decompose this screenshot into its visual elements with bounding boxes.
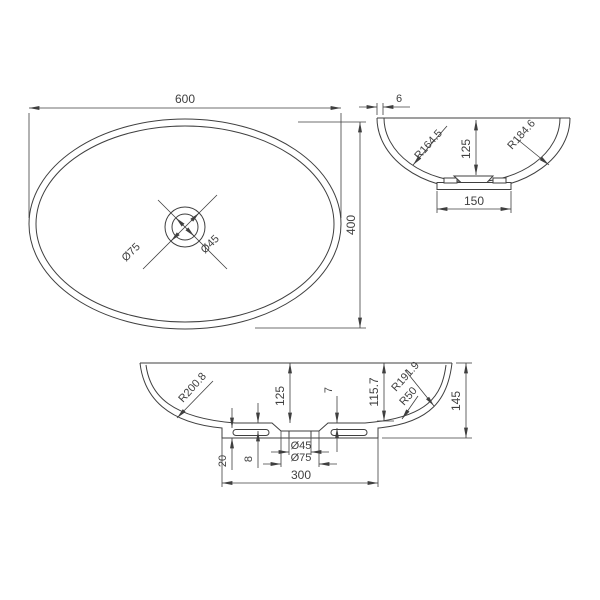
dim-base-height: 20 [217,408,232,470]
top-view: Ø75 Ø45 600 400 [29,92,366,329]
dim-label-height: 400 [344,215,358,235]
side-base-slab [437,183,511,190]
dim-label-side-depth: 125 [459,139,473,159]
dim-side-inner-radius: R164.5 [412,126,447,165]
dim-label-base-height: 20 [217,455,229,467]
dim-side-outer-radius: R184.6 [505,118,549,165]
dim-top-height: 400 [255,122,366,328]
dim-label-side-base-width: 150 [464,194,484,208]
basin-inner-rim [36,126,334,322]
dim-label-shell-thickness: 7 [323,387,335,393]
dim-drain-hole: Ø45 [158,200,227,269]
dim-label-rim-thickness: 6 [396,93,402,105]
technical-drawing-sheet: Ø75 Ø45 600 400 [0,0,600,600]
dim-label-front-drain-dia: Ø45 [291,440,312,452]
side-section-view: 6 R164.5 125 R184.6 150 [359,93,570,213]
dim-label-front-base-width: 300 [291,468,311,482]
front-section-view: R200.8 125 7 115.7 R191.9 R50 [140,360,472,487]
dim-side-depth: 125 [459,120,476,175]
dim-inner-height: 115.7 [367,363,394,421]
basin-outer-rim [29,119,341,329]
dim-drain-recess: Ø75 [120,195,217,269]
dim-label-front-depth: 125 [273,386,287,406]
dim-shell-thickness: 7 [323,387,337,452]
side-drain-recess [454,176,493,183]
dim-label-front-recess-dia: Ø75 [291,452,312,464]
dim-label-inner-height: 115.7 [367,377,381,406]
dim-label-front-outer-radius: R191.9 [389,360,422,394]
basin-dimension-drawing: Ø75 Ø45 600 400 [0,0,600,600]
side-foot-left [444,178,457,183]
dim-label-recess-dia: Ø75 [120,241,143,264]
base-groove-left [233,430,269,436]
dim-top-width: 600 [29,92,341,218]
dim-rim-thickness: 6 [359,93,410,115]
dim-label-overall-height: 145 [449,391,463,411]
dim-overall-height: 145 [382,363,472,438]
dim-label-front-inner-radius: R200.8 [176,371,209,405]
dim-front-depth: 125 [273,363,290,423]
dim-label-side-outer-radius: R184.6 [505,118,538,152]
dim-label-width: 600 [175,92,195,106]
dim-label-side-inner-radius: R164.5 [412,128,445,162]
dim-label-recess-depth: 8 [243,456,255,462]
side-foot-right [493,178,506,183]
dim-side-base-width: 150 [437,191,511,213]
base-groove-right [331,430,367,436]
